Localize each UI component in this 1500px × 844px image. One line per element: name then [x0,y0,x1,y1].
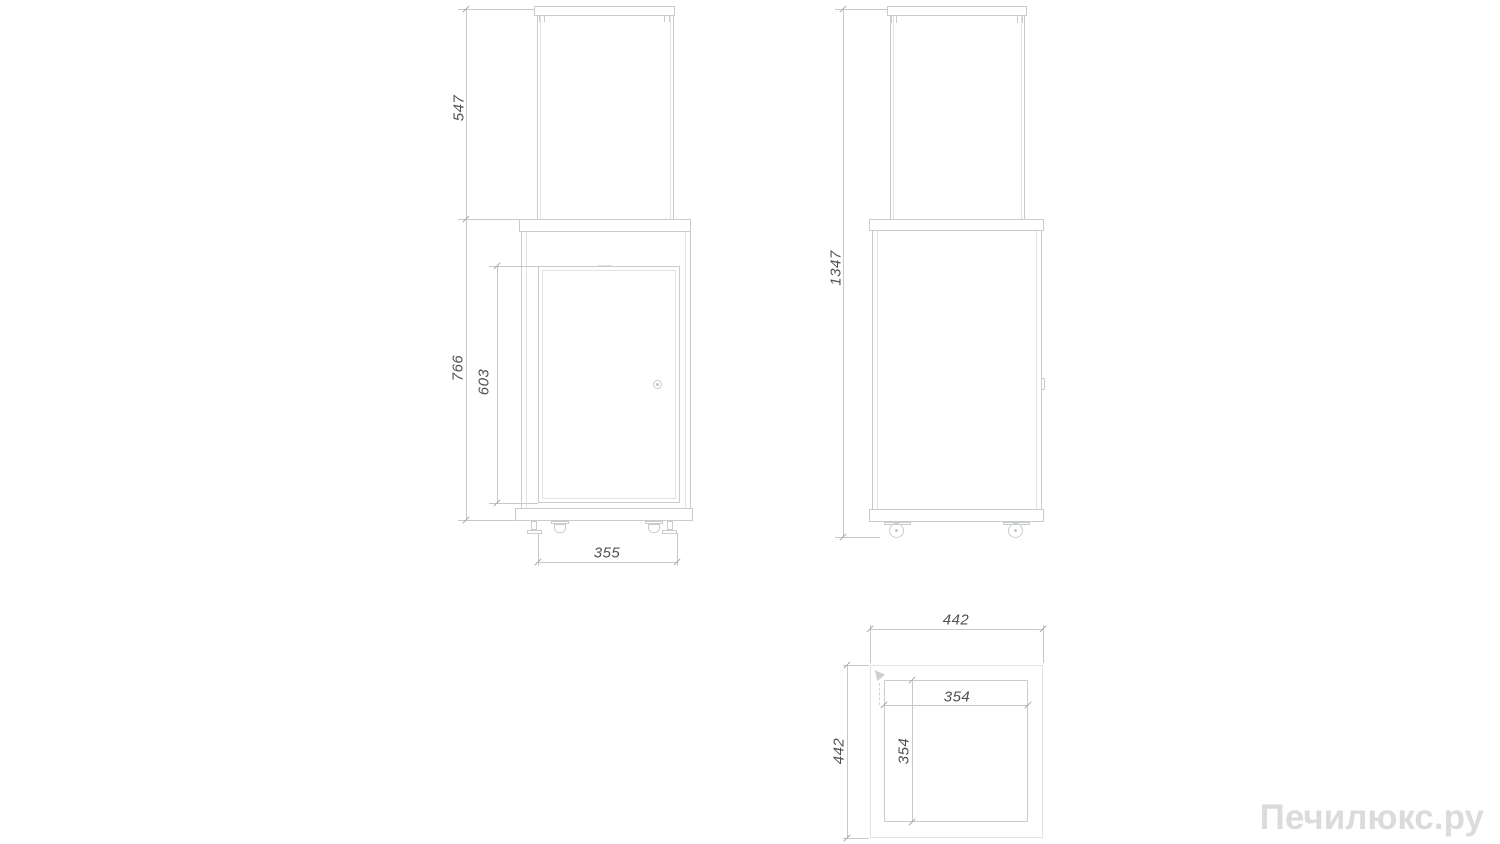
dimension-line-442-width [870,629,1043,630]
cabinet-side-edge-inner [1036,231,1037,509]
door-lock-center [656,383,659,386]
cabinet-top-plate-front [519,219,691,232]
door-handle-side [1041,378,1045,390]
glass-tube-edge [673,16,674,219]
cap-bracket-line [1022,16,1023,23]
glass-tube-edge-inner [893,16,894,219]
watermark-text: Печилюкс.ру [1260,798,1484,838]
cabinet-side-edge-inner [685,232,686,508]
leveling-foot-right [667,521,673,530]
cap-bracket-line [896,16,897,23]
cabinet-top-plate-side [869,219,1044,231]
glass-tube-edge-inner [540,16,541,219]
hinge-axis-line [879,683,880,705]
caster-left-hub [895,529,898,532]
cabinet-side-edge [521,232,522,508]
door-hinge-mark [598,265,612,266]
drawing-canvas: 547 766 603 355 [0,0,1500,844]
extension-line [870,625,871,663]
dimension-label-door-height: 603 [477,369,492,396]
cap-bracket-line [664,16,665,22]
cap-bracket-line [1017,16,1018,23]
cap-bracket-line [544,16,545,22]
cap-bracket-line [891,16,892,23]
cabinet-side-edge-inner [877,231,878,509]
cabinet-side-edge [1041,231,1042,509]
caster-right-wheel-icon [648,524,660,533]
glass-tube-edge [890,16,891,219]
extension-line [458,219,519,220]
base-plate-front [515,508,693,521]
glass-tube-edge [1024,16,1025,219]
cabinet-side-edge-inner [526,232,527,508]
dimension-label-outer-depth: 442 [832,738,847,765]
leveling-foot-left-plate [527,530,542,534]
dimension-label-inner-width: 354 [944,690,971,705]
leveling-foot-right-plate [662,530,677,534]
dimension-label-base-width: 355 [594,546,621,561]
top-cap-front [534,6,675,16]
glass-tube-edge [537,16,538,219]
caster-left-wheel-icon [554,524,566,533]
dimension-label-body-height: 766 [451,355,466,382]
dimension-line-603 [497,266,498,503]
dimension-label-total-height: 1347 [829,250,844,285]
cabinet-side-edge [872,231,873,509]
top-cap-side [887,6,1027,16]
dimension-label-outer-width: 442 [943,613,970,628]
extension-line [1043,625,1044,663]
cabinet-side-edge [690,232,691,508]
leveling-foot-left [531,521,537,530]
extension-line [458,9,534,10]
caster-right-hub [1014,529,1017,532]
dimension-label-inner-depth: 354 [897,738,912,765]
dimension-label-glass-height: 547 [452,95,467,122]
glass-tube-edge-inner [1021,16,1022,219]
base-plate-side [869,509,1044,522]
glass-tube-edge-inner [670,16,671,219]
dimension-line-355 [538,562,677,563]
